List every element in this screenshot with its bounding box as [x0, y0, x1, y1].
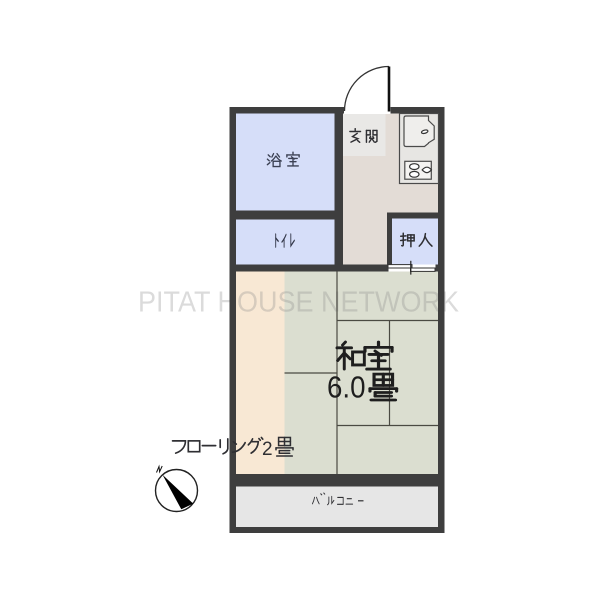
svg-text:2: 2	[262, 439, 273, 460]
svg-text:PITAT HOUSE NETWORK: PITAT HOUSE NETWORK	[138, 287, 459, 319]
svg-text:6.0: 6.0	[327, 370, 366, 405]
